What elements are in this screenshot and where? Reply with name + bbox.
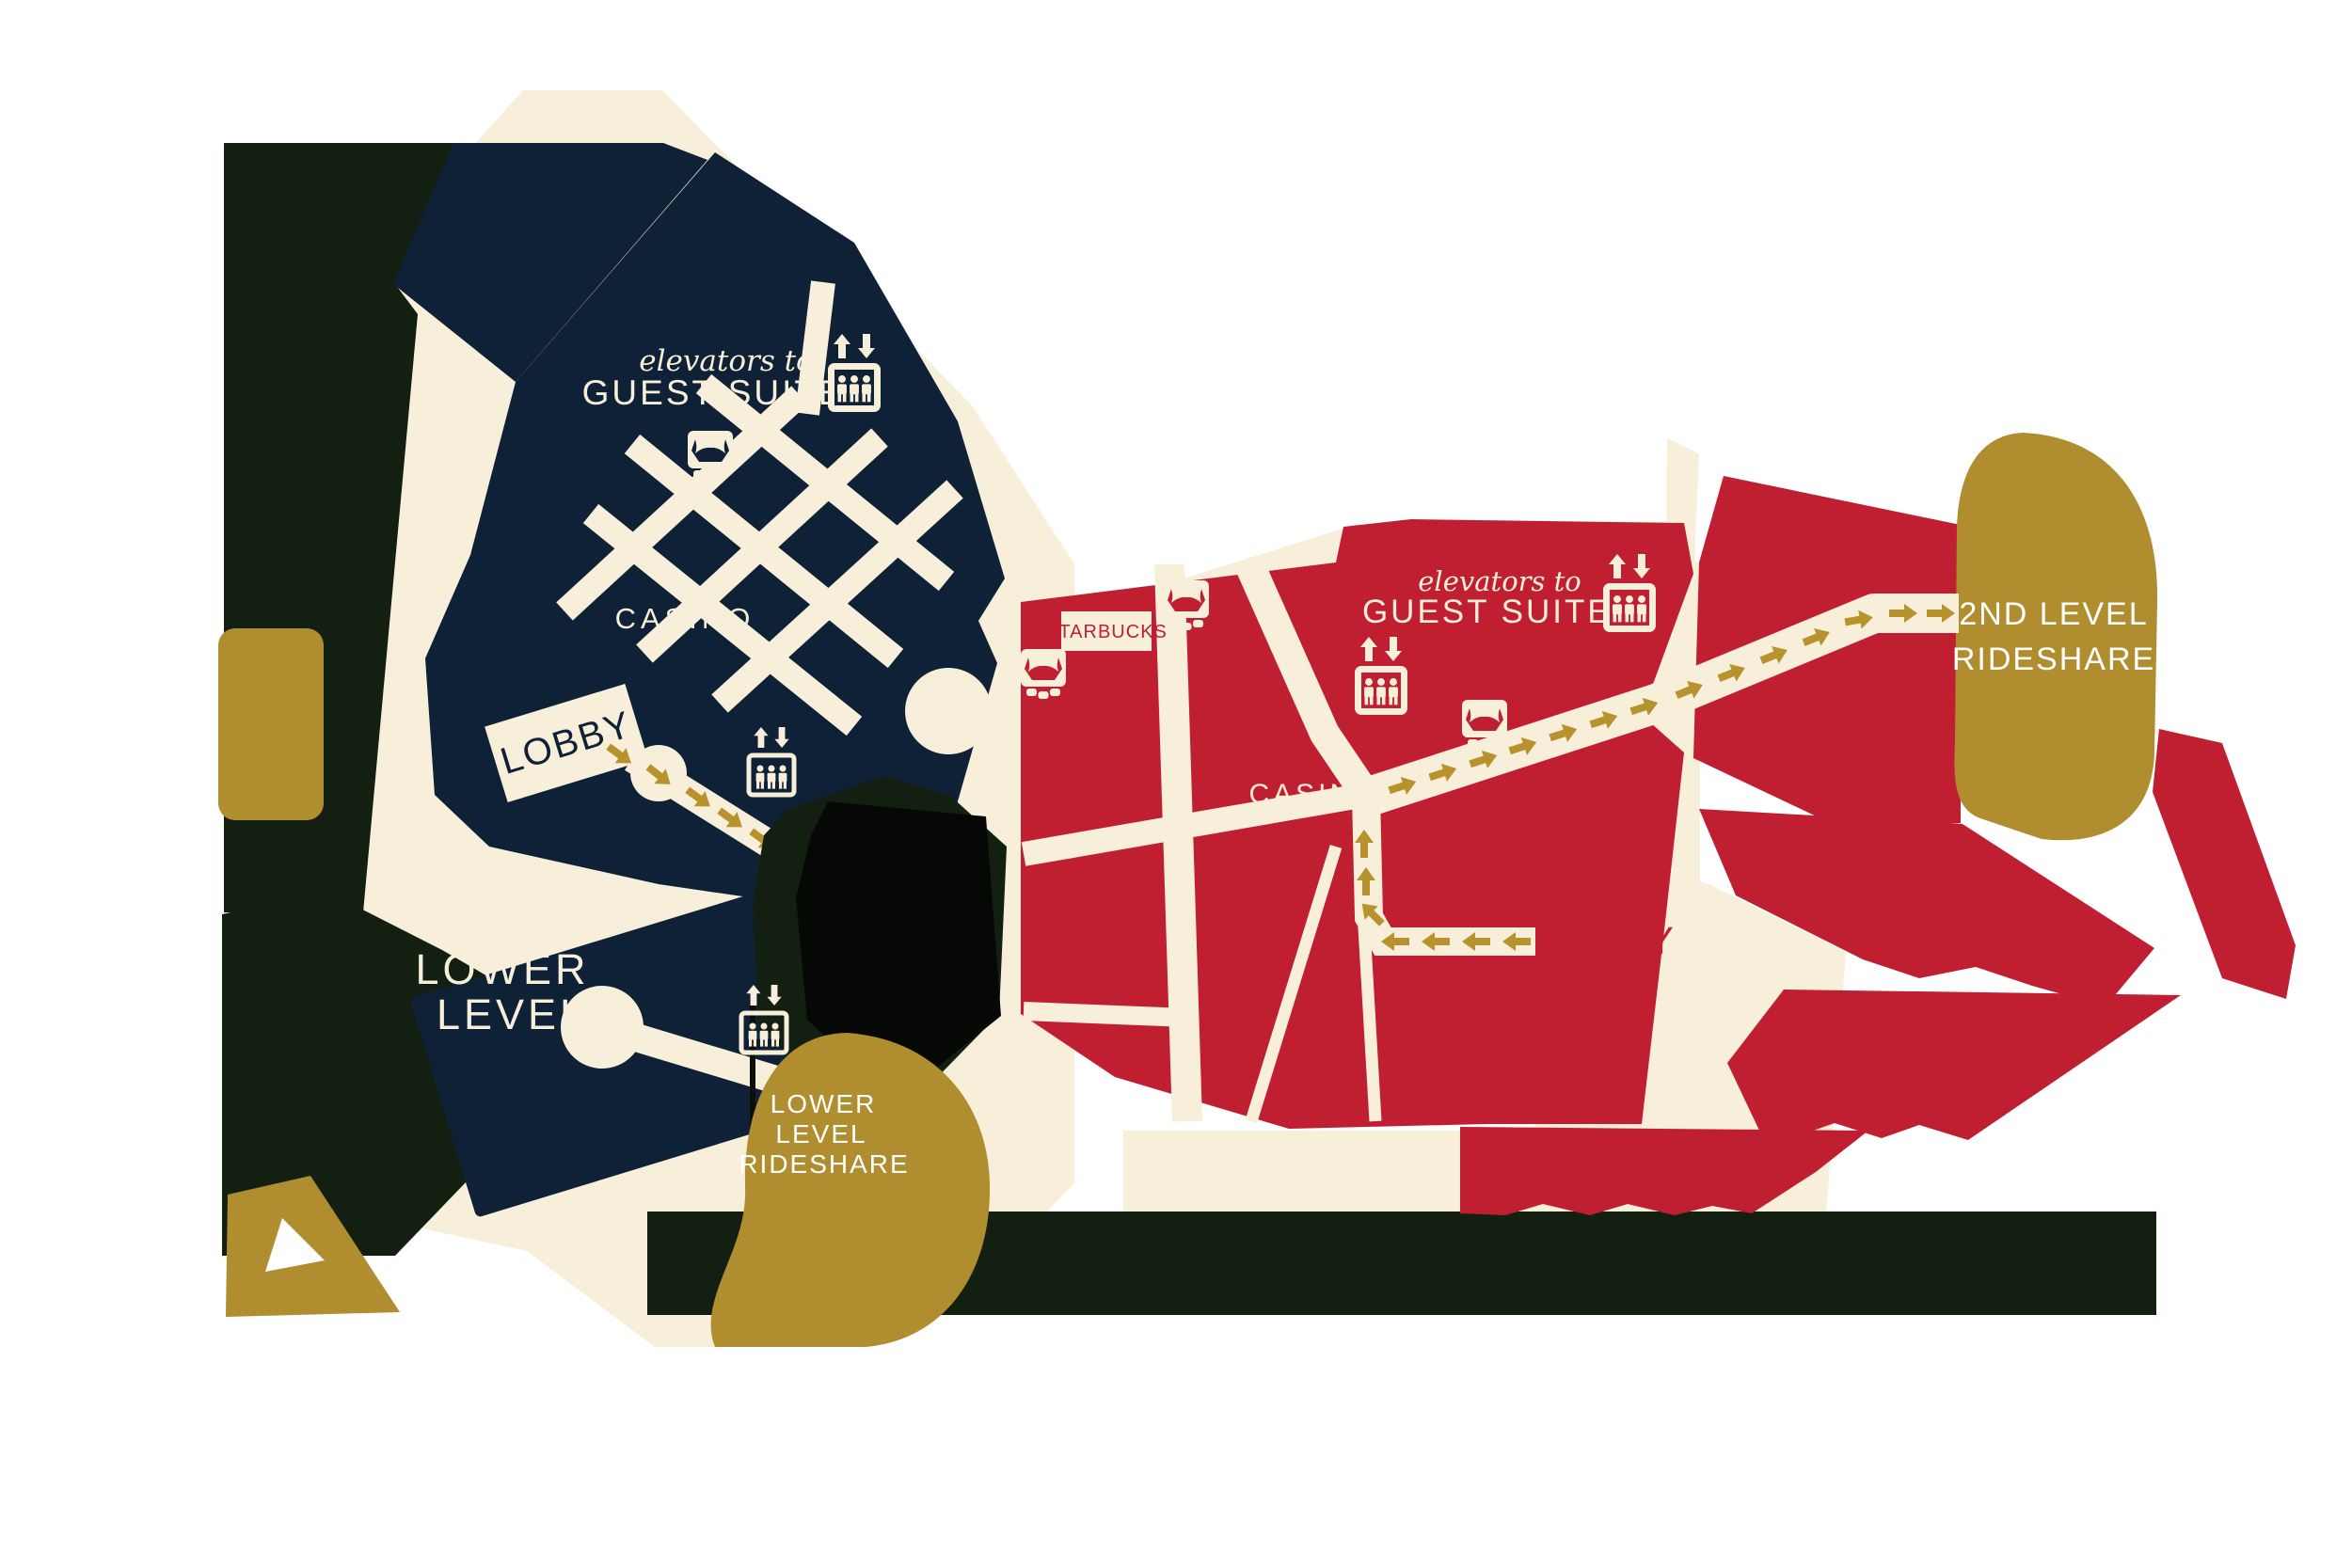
- red-band-far-right: [2153, 729, 2296, 999]
- lower-level-label-line2: LEVEL: [437, 990, 587, 1038]
- gold-left-block: [218, 628, 324, 820]
- starbucks-label: STARBUCKS: [1045, 622, 1168, 642]
- lower-rideshare-line1: LOWER: [771, 1089, 877, 1118]
- gold-2nd-rideshare-blob: [1954, 433, 2157, 840]
- red-lobby-label: LOBBY: [1534, 919, 1677, 962]
- theater-icon-navy: [688, 431, 733, 481]
- lower-rideshare-line2: LEVEL: [775, 1119, 866, 1148]
- red-tower: STARBUCKS elevators to GUEST SUITES CASI…: [1021, 519, 1693, 1129]
- red-guest-suites-label: GUEST SUITES: [1362, 594, 1637, 630]
- red-casino-label: CASINO: [1248, 779, 1379, 810]
- second-rideshare-line1: 2ND LEVEL: [1959, 596, 2148, 632]
- second-rideshare-line2: RIDESHARE: [1952, 641, 2155, 677]
- walkway-node-large: [905, 668, 992, 754]
- red-elevators-to-label: elevators to: [1418, 565, 1581, 597]
- theater-icon-red-top: [1164, 580, 1209, 630]
- red-fragment-lower-right: [1727, 990, 2181, 1140]
- lower-level-label-line1: LOWER: [415, 945, 589, 993]
- lower-rideshare-line3: RIDESHARE: [739, 1149, 909, 1179]
- second-level-rideshare: 2ND LEVEL RIDESHARE: [1952, 433, 2157, 840]
- theater-icon-red-left: [1021, 649, 1066, 699]
- starbucks: STARBUCKS: [1045, 611, 1168, 651]
- navy-casino-label: CASINO: [615, 602, 755, 635]
- navy-guest-suites-label: GUEST SUITES: [582, 373, 871, 412]
- resort-walkway-map: LOBBY elevators to GUEST SUITES CASINO L…: [0, 0, 2352, 1568]
